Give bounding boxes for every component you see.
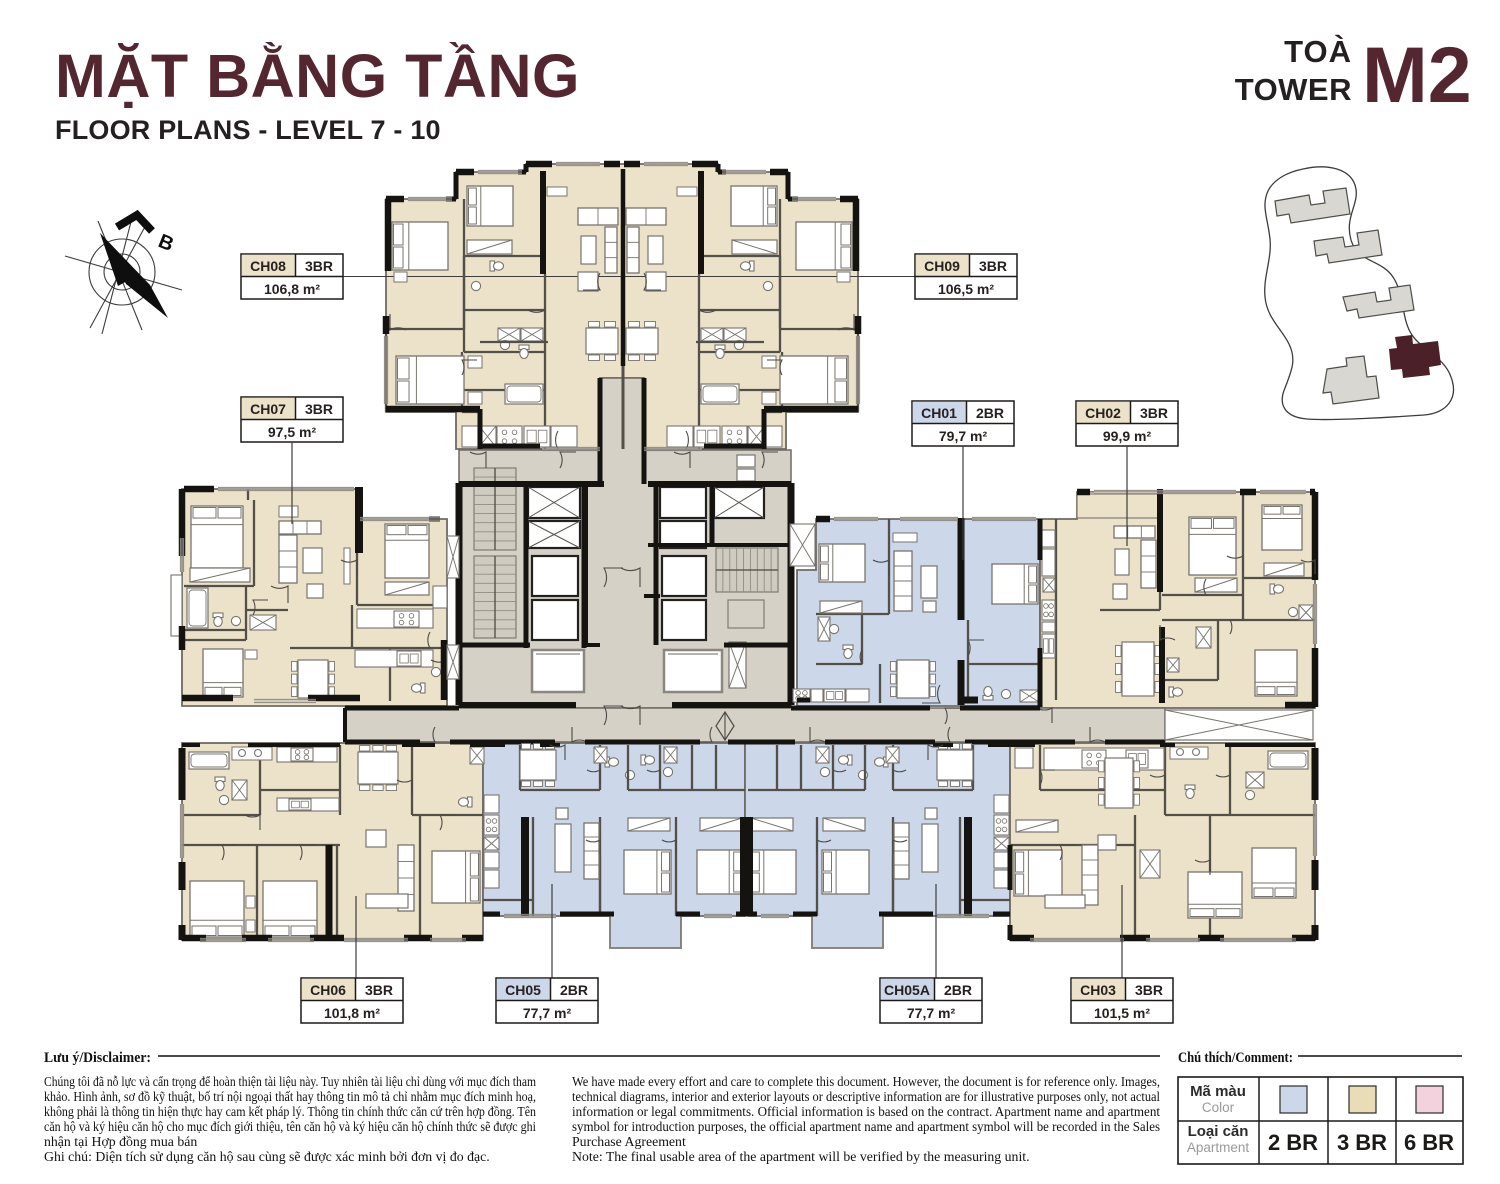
svg-text:3BR: 3BR [365, 982, 393, 998]
svg-text:CH05: CH05 [505, 982, 541, 998]
svg-text:101,8 m²: 101,8 m² [324, 1005, 380, 1021]
svg-text:CH06: CH06 [310, 982, 346, 998]
svg-text:Chúng tôi đã nỗ lực và cẩn trọ: Chúng tôi đã nỗ lực và cẩn trọng để hoàn… [44, 1074, 536, 1089]
svg-text:We have made every effort and: We have made every effort and care to co… [572, 1074, 1160, 1089]
svg-text:Color: Color [1202, 1100, 1235, 1115]
svg-text:CH08: CH08 [250, 258, 286, 274]
svg-text:Ghi chú: Diện tích sử dụng căn: Ghi chú: Diện tích sử dụng căn hộ sau cù… [44, 1149, 490, 1164]
svg-text:CH09: CH09 [924, 258, 960, 274]
svg-text:căn hộ và ký hiệu căn hộ cho m: căn hộ và ký hiệu căn hộ cho mục đích gi… [44, 1119, 536, 1134]
svg-text:symbol for introduction purpos: symbol for introduction purposes, the of… [572, 1119, 1160, 1134]
svg-text:TOÀ: TOÀ [1284, 34, 1352, 69]
svg-text:Purchase Agreement: Purchase Agreement [572, 1134, 686, 1149]
svg-text:77,7 m²: 77,7 m² [907, 1005, 956, 1021]
svg-text:Apartment: Apartment [1187, 1140, 1250, 1155]
svg-text:3BR: 3BR [979, 258, 1007, 274]
svg-text:nhận tại Hợp đồng mua bán: nhận tại Hợp đồng mua bán [44, 1134, 197, 1149]
svg-text:Loại căn: Loại căn [1188, 1123, 1249, 1140]
svg-text:106,5 m²: 106,5 m² [938, 281, 994, 297]
svg-text:3BR: 3BR [1135, 982, 1163, 998]
svg-text:TOWER: TOWER [1235, 72, 1352, 107]
svg-text:CH03: CH03 [1080, 982, 1116, 998]
svg-text:không phải là thông tin hiện t: không phải là thông tin hiện thực hay ca… [44, 1104, 536, 1119]
svg-text:3BR: 3BR [305, 401, 333, 417]
svg-text:FLOOR PLANS - LEVEL 7 - 10: FLOOR PLANS - LEVEL 7 - 10 [55, 115, 441, 145]
svg-text:M2: M2 [1362, 30, 1472, 119]
svg-text:Mã màu: Mã màu [1190, 1083, 1246, 1100]
svg-text:101,5 m²: 101,5 m² [1094, 1005, 1150, 1021]
svg-text:6 BR: 6 BR [1404, 1130, 1454, 1155]
svg-text:77,7 m²: 77,7 m² [523, 1005, 572, 1021]
svg-text:3 BR: 3 BR [1337, 1130, 1387, 1155]
svg-text:Note: The final usable area of: Note: The final usable area of the apart… [572, 1149, 1030, 1164]
svg-text:MẶT BẰNG TẦNG: MẶT BẰNG TẦNG [55, 42, 580, 110]
svg-text:79,7 m²: 79,7 m² [939, 428, 988, 444]
svg-text:99,9 m²: 99,9 m² [1103, 428, 1152, 444]
svg-text:2BR: 2BR [944, 982, 972, 998]
svg-text:CH02: CH02 [1085, 405, 1121, 421]
svg-text:2BR: 2BR [976, 405, 1004, 421]
svg-text:CH05A: CH05A [884, 982, 930, 998]
svg-text:information or legal commitmen: information or legal commitments. Offici… [572, 1104, 1160, 1119]
svg-text:CH01: CH01 [921, 405, 957, 421]
svg-text:2BR: 2BR [560, 982, 588, 998]
svg-text:3BR: 3BR [305, 258, 333, 274]
svg-text:technical diagrams, interior a: technical diagrams, interior and exterio… [572, 1089, 1160, 1104]
svg-text:Chú thích/Comment:: Chú thích/Comment: [1178, 1050, 1293, 1066]
svg-text:Lưu ý/Disclaimer:: Lưu ý/Disclaimer: [44, 1050, 151, 1066]
svg-text:2 BR: 2 BR [1268, 1130, 1318, 1155]
svg-text:97,5 m²: 97,5 m² [268, 424, 317, 440]
svg-text:106,8 m²: 106,8 m² [264, 281, 320, 297]
svg-text:3BR: 3BR [1140, 405, 1168, 421]
svg-text:khảo. Hình ảnh, sơ đồ kỹ thuật: khảo. Hình ảnh, sơ đồ kỹ thuật, bố trí n… [44, 1089, 536, 1104]
svg-text:CH07: CH07 [250, 401, 286, 417]
